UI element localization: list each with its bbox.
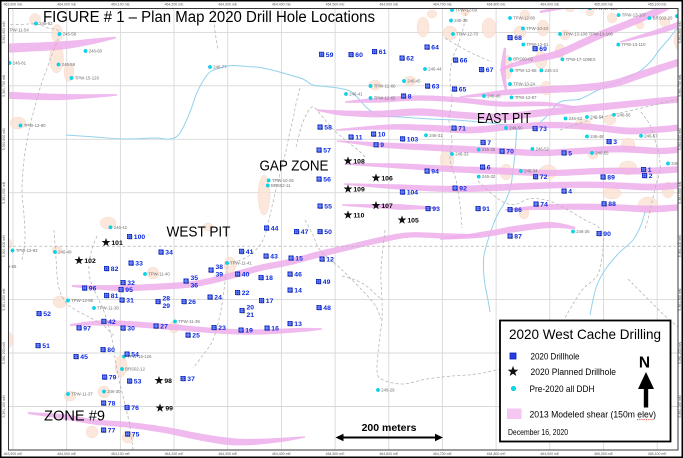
svg-text:75: 75: [132, 432, 140, 439]
svg-text:464,000 mE: 464,000 mE: [57, 452, 77, 456]
svg-text:464,800 mE: 464,800 mE: [487, 452, 507, 456]
svg-text:105: 105: [407, 218, 419, 225]
svg-text:80: 80: [107, 347, 115, 354]
svg-text:59: 59: [326, 52, 334, 59]
svg-text:3: 3: [613, 139, 617, 146]
svg-text:464,900 mE: 464,900 mE: [540, 452, 560, 456]
svg-text:246-57: 246-57: [644, 133, 658, 138]
svg-text:246-24: 246-24: [545, 68, 559, 73]
svg-text:109: 109: [353, 187, 365, 194]
svg-text:18: 18: [265, 275, 273, 282]
svg-text:58: 58: [324, 125, 332, 132]
svg-text:7: 7: [487, 140, 491, 147]
svg-text:35: 35: [191, 275, 199, 282]
svg-text:54: 54: [131, 352, 139, 359]
svg-text:464,500 mE: 464,500 mE: [326, 3, 346, 7]
svg-text:24: 24: [214, 295, 222, 302]
svg-text:96: 96: [89, 286, 97, 293]
svg-text:246-31: 246-31: [429, 133, 443, 138]
svg-text:246-48: 246-48: [590, 134, 604, 139]
svg-text:464,700 mE: 464,700 mE: [433, 3, 453, 7]
svg-text:465,000 mE: 465,000 mE: [594, 3, 614, 7]
svg-text:246-58: 246-58: [63, 32, 77, 37]
svg-text:TPW-17-109EX: TPW-17-109EX: [566, 57, 596, 62]
svg-text:52: 52: [43, 311, 51, 318]
svg-text:BRS02-20: BRS02-20: [653, 16, 673, 21]
svg-text:100: 100: [134, 234, 146, 241]
svg-text:246-38: 246-38: [454, 18, 468, 23]
svg-text:TPW-12-66: TPW-12-66: [374, 84, 396, 89]
svg-text:TPW-12-88: TPW-12-88: [515, 68, 537, 73]
svg-text:465,100 mE: 465,100 mE: [648, 452, 668, 456]
svg-text:WEST PIT: WEST PIT: [167, 225, 231, 241]
svg-text:39: 39: [216, 271, 224, 278]
svg-text:246-46: 246-46: [487, 94, 501, 99]
svg-text:5,361,600 mN: 5,361,600 mN: [678, 128, 682, 150]
svg-text:98: 98: [164, 378, 172, 385]
svg-text:65: 65: [459, 87, 467, 94]
svg-text:5,361,800 mN: 5,361,800 mN: [2, 21, 6, 43]
svg-text:15: 15: [295, 256, 303, 263]
svg-text:464,100 mE: 464,100 mE: [111, 3, 131, 7]
svg-text:26: 26: [188, 299, 196, 306]
svg-text:92: 92: [459, 186, 467, 193]
svg-text:2020 Planned Drillhole: 2020 Planned Drillhole: [531, 367, 617, 378]
svg-text:62: 62: [406, 56, 414, 63]
svg-text:246-33: 246-33: [455, 152, 469, 157]
svg-text:30: 30: [127, 326, 135, 333]
svg-text:87: 87: [514, 234, 522, 241]
svg-text:9: 9: [380, 142, 384, 149]
svg-text:78: 78: [108, 401, 116, 408]
svg-text:BRS00-02: BRS00-02: [513, 57, 533, 62]
svg-text:2020 West Cache Drilling: 2020 West Cache Drilling: [509, 326, 661, 342]
svg-text:464,200 mE: 464,200 mE: [165, 452, 185, 456]
svg-text:246-49: 246-49: [58, 250, 72, 255]
svg-text:93: 93: [432, 206, 440, 213]
svg-text:246-59: 246-59: [62, 62, 76, 67]
svg-text:5,361,600 mN: 5,361,600 mN: [2, 128, 6, 150]
svg-text:5,361,300 mN: 5,361,300 mN: [2, 288, 6, 310]
svg-text:91: 91: [482, 206, 490, 213]
svg-text:5,361,500 mN: 5,361,500 mN: [2, 181, 6, 203]
svg-text:246-41: 246-41: [349, 92, 363, 97]
svg-text:464,900 mE: 464,900 mE: [540, 3, 560, 7]
svg-text:34: 34: [165, 250, 173, 257]
svg-text:73: 73: [539, 126, 547, 133]
svg-text:2020 Drillhole: 2020 Drillhole: [531, 352, 580, 363]
svg-text:ZONE #9: ZONE #9: [44, 409, 105, 425]
svg-text:464,300 mE: 464,300 mE: [218, 452, 238, 456]
svg-text:55: 55: [324, 204, 332, 211]
svg-text:104: 104: [407, 190, 419, 197]
svg-text:464,300 mE: 464,300 mE: [218, 3, 238, 7]
svg-text:56: 56: [323, 177, 331, 184]
svg-text:108: 108: [353, 159, 365, 166]
svg-text:68: 68: [514, 35, 522, 42]
svg-text:TPW-12-90: TPW-12-90: [24, 123, 46, 128]
svg-text:94: 94: [431, 169, 439, 176]
svg-text:38: 38: [216, 264, 224, 271]
svg-text:4: 4: [568, 189, 572, 196]
svg-text:464,000 mE: 464,000 mE: [57, 3, 77, 7]
svg-text:82: 82: [111, 266, 119, 273]
svg-text:TPW-10-23: TPW-10-23: [526, 26, 548, 31]
svg-text:FIGURE # 1 – Plan Map 2020 Dri: FIGURE # 1 – Plan Map 2020 Drill Hole Lo…: [43, 9, 375, 26]
svg-text:71: 71: [458, 126, 466, 133]
svg-text:8: 8: [408, 94, 412, 101]
svg-text:28: 28: [163, 296, 171, 303]
svg-text:32: 32: [127, 280, 135, 287]
svg-text:TPW-11-38: TPW-11-38: [97, 306, 119, 311]
svg-text:25: 25: [192, 333, 200, 340]
svg-text:44: 44: [271, 226, 279, 233]
svg-text:5,361,500 mN: 5,361,500 mN: [678, 181, 682, 203]
svg-text:72: 72: [540, 174, 548, 181]
svg-text:464,400 mE: 464,400 mE: [272, 452, 292, 456]
svg-text:TPW-10-24: TPW-10-24: [513, 82, 535, 87]
svg-text:67: 67: [486, 67, 494, 74]
svg-text:36: 36: [191, 282, 199, 289]
svg-text:TPW-11-41: TPW-11-41: [230, 261, 252, 266]
svg-text:42: 42: [108, 319, 116, 326]
svg-text:27: 27: [160, 324, 168, 331]
svg-text:246-56: 246-56: [617, 112, 631, 117]
svg-text:TPW-13-108 TPW-13-106: TPW-13-108 TPW-13-106: [563, 32, 613, 37]
svg-text:5,361,400 mN: 5,361,400 mN: [2, 235, 6, 257]
svg-text:6: 6: [487, 165, 491, 172]
svg-text:60: 60: [355, 52, 363, 59]
svg-text:16: 16: [271, 326, 279, 333]
svg-text:246-53: 246-53: [569, 116, 583, 121]
svg-text:TPW-12-70: TPW-12-70: [456, 32, 478, 37]
svg-text:246-44: 246-44: [428, 67, 442, 72]
svg-text:106: 106: [381, 176, 393, 183]
svg-text:464,800 mE: 464,800 mE: [487, 3, 507, 7]
svg-text:63: 63: [432, 84, 440, 91]
svg-text:246-30: 246-30: [107, 389, 121, 394]
svg-text:23: 23: [218, 325, 226, 332]
svg-text:43: 43: [270, 254, 278, 261]
svg-text:95: 95: [125, 287, 133, 294]
svg-text:TPW-11-40: TPW-11-40: [148, 272, 170, 277]
svg-text:246-25: 246-25: [482, 147, 496, 152]
svg-text:246-32: 246-32: [482, 174, 496, 179]
svg-text:64: 64: [431, 45, 439, 52]
svg-text:45: 45: [80, 354, 88, 361]
svg-text:5,361,400 mN: 5,361,400 mN: [678, 235, 682, 257]
svg-text:246-77: 246-77: [213, 65, 227, 70]
svg-text:5,361,800 mN: 5,361,800 mN: [678, 21, 682, 43]
svg-text:46: 46: [294, 272, 302, 279]
svg-text:29: 29: [163, 303, 171, 310]
svg-text:101: 101: [111, 240, 123, 247]
svg-text:66: 66: [460, 58, 468, 65]
svg-text:110: 110: [353, 213, 364, 220]
svg-text:41: 41: [246, 249, 254, 256]
svg-text:December 16, 2020: December 16, 2020: [508, 428, 568, 437]
svg-text:2: 2: [649, 173, 653, 180]
svg-text:22: 22: [242, 290, 250, 297]
svg-text:464,400 mE: 464,400 mE: [272, 3, 292, 7]
svg-text:246-42: 246-42: [114, 225, 128, 230]
svg-text:20: 20: [247, 305, 255, 312]
svg-text:N: N: [639, 355, 650, 372]
svg-text:69: 69: [539, 46, 547, 53]
svg-text:465,100 mE: 465,100 mE: [648, 3, 668, 7]
svg-text:464,600 mE: 464,600 mE: [379, 3, 399, 7]
svg-text:GAP ZONE: GAP ZONE: [260, 159, 329, 175]
svg-text:37: 37: [187, 376, 195, 383]
svg-text:BRS02-11: BRS02-11: [271, 183, 291, 188]
svg-text:50: 50: [324, 229, 332, 236]
svg-text:81: 81: [111, 293, 119, 300]
svg-text:5: 5: [568, 150, 572, 157]
svg-text:Pre-2020 all DDH: Pre-2020 all DDH: [530, 384, 595, 395]
svg-text:70: 70: [506, 149, 514, 156]
svg-text:463,900 mE: 463,900 mE: [4, 452, 24, 456]
svg-text:47: 47: [301, 229, 309, 236]
svg-text:463,900 mE: 463,900 mE: [4, 3, 24, 7]
svg-text:53: 53: [134, 379, 142, 386]
svg-text:TPW-12-87: TPW-12-87: [515, 95, 537, 100]
svg-text:107: 107: [381, 203, 393, 210]
svg-text:5,361,700 mN: 5,361,700 mN: [678, 74, 682, 96]
svg-text:86: 86: [514, 207, 522, 214]
svg-text:5,361,200 mN: 5,361,200 mN: [2, 342, 6, 364]
svg-text:14: 14: [294, 288, 302, 295]
svg-text:246-81: 246-81: [13, 61, 27, 66]
svg-text:74: 74: [540, 202, 548, 209]
svg-text:464,100 mE: 464,100 mE: [111, 452, 131, 456]
svg-text:13: 13: [294, 321, 302, 328]
svg-text:TPW-11-37: TPW-11-37: [71, 392, 93, 397]
svg-text:79: 79: [109, 375, 117, 382]
svg-text:5,361,100 mN: 5,361,100 mN: [678, 395, 682, 417]
svg-text:97: 97: [83, 325, 91, 332]
svg-text:5,361,700 mN: 5,361,700 mN: [2, 74, 6, 96]
svg-text:464,700 mE: 464,700 mE: [433, 452, 453, 456]
svg-text:11: 11: [355, 135, 362, 142]
svg-text:61: 61: [379, 49, 387, 56]
svg-text:464,600 mE: 464,600 mE: [379, 452, 399, 456]
svg-text:49: 49: [323, 279, 331, 286]
svg-text:200 meters: 200 meters: [362, 422, 417, 434]
svg-text:12: 12: [326, 257, 334, 264]
svg-text:40: 40: [242, 272, 250, 279]
svg-text:5,361,100 mN: 5,361,100 mN: [2, 395, 6, 417]
svg-text:102: 102: [84, 258, 96, 265]
svg-text:EAST PIT: EAST PIT: [477, 111, 531, 127]
svg-text:TPW-11-54: TPW-11-54: [7, 28, 29, 33]
svg-text:19: 19: [245, 328, 253, 335]
svg-text:77: 77: [108, 428, 116, 435]
svg-text:TPW-12-80: TPW-12-80: [513, 16, 535, 21]
svg-text:246-29: 246-29: [381, 388, 395, 393]
svg-text:246-45: 246-45: [407, 79, 421, 84]
svg-text:TPW-12-93: TPW-12-93: [16, 248, 38, 253]
svg-text:10: 10: [378, 132, 386, 139]
svg-text:246-54: 246-54: [590, 115, 604, 120]
svg-text:464,500 mE: 464,500 mE: [326, 452, 346, 456]
svg-text:21: 21: [247, 312, 255, 319]
svg-text:TPW-13-110: TPW-13-110: [622, 42, 647, 47]
svg-text:464,200 mE: 464,200 mE: [165, 3, 185, 7]
svg-text:103: 103: [407, 136, 419, 143]
svg-text:BRS02-12: BRS02-12: [125, 367, 145, 372]
svg-text:17: 17: [266, 298, 274, 305]
svg-text:465,000 mE: 465,000 mE: [594, 452, 614, 456]
svg-text:31: 31: [126, 298, 134, 305]
svg-text:48: 48: [323, 305, 331, 312]
svg-text:TPW-15-120: TPW-15-120: [75, 76, 100, 81]
svg-text:246-60: 246-60: [89, 49, 103, 54]
svg-text:TPW-11-39: TPW-11-39: [178, 319, 200, 324]
svg-text:89: 89: [607, 174, 615, 181]
svg-text:51: 51: [42, 343, 50, 350]
svg-text:TPW-12-96: TPW-12-96: [71, 298, 93, 303]
svg-text:5,361,200 mN: 5,361,200 mN: [678, 342, 682, 364]
svg-text:5,361,300 mN: 5,361,300 mN: [678, 288, 682, 310]
svg-text:246-52: 246-52: [536, 147, 550, 152]
svg-text:76: 76: [131, 405, 139, 412]
svg-text:33: 33: [135, 261, 143, 268]
svg-text:TPW-13-107: TPW-13-107: [622, 13, 647, 18]
svg-text:TPW-12-65: TPW-12-65: [374, 96, 396, 101]
svg-text:90: 90: [603, 231, 611, 238]
svg-text:2013 Modeled shear (150m elev): 2013 Modeled shear (150m elev): [530, 410, 657, 421]
svg-text:246-34: 246-34: [524, 169, 538, 174]
svg-text:88: 88: [608, 201, 616, 208]
svg-text:246-55: 246-55: [595, 151, 609, 156]
svg-text:57: 57: [323, 148, 331, 155]
svg-text:246-26: 246-26: [576, 229, 590, 234]
svg-text:99: 99: [165, 406, 173, 413]
